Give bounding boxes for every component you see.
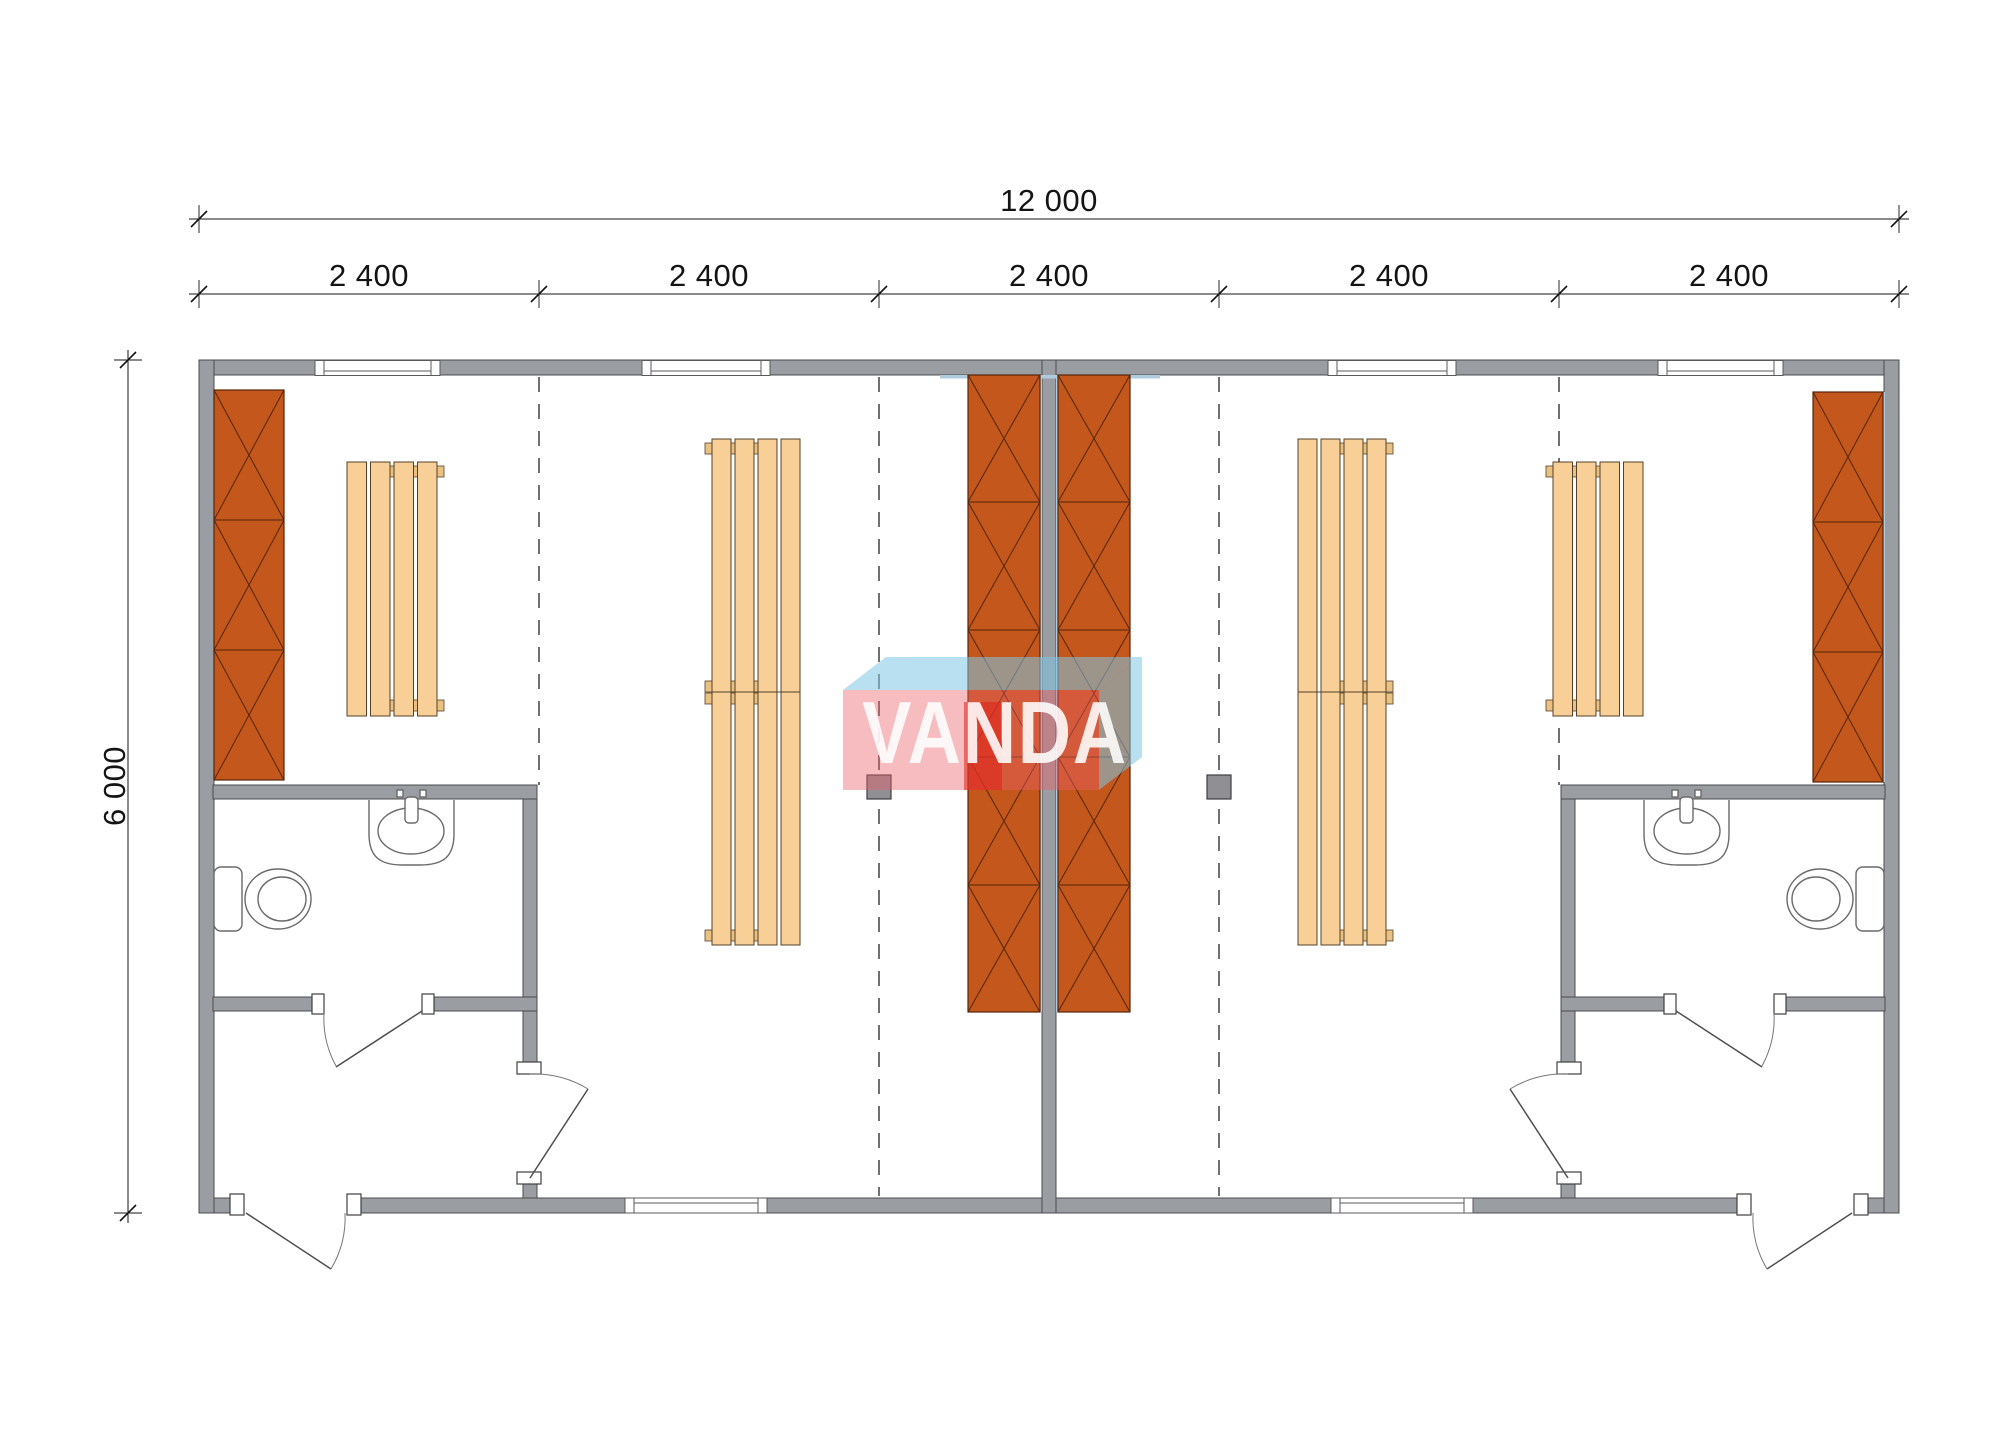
locker-left-wall bbox=[214, 390, 284, 780]
bathroom-wall-bottom-b bbox=[434, 997, 537, 1011]
wall-right bbox=[1884, 360, 1899, 1213]
bench-module-1 bbox=[347, 462, 444, 716]
dimension-overall-width: 12 000 bbox=[189, 183, 1909, 233]
toilet-icon bbox=[214, 867, 311, 931]
vestibule-wall-a bbox=[523, 1011, 537, 1062]
sanitary-unit-right-mirrored bbox=[1510, 785, 1885, 1269]
floor-plan-drawing: 12 000 2 400 2 400 2 400 2 400 2 400 6 0… bbox=[0, 0, 2000, 1438]
module-width-label-1: 2 400 bbox=[329, 258, 409, 293]
bench-module-2 bbox=[705, 439, 800, 945]
dimension-modules: 2 400 2 400 2 400 2 400 2 400 bbox=[189, 258, 1909, 308]
dimension-overall-height: 6 000 bbox=[97, 350, 142, 1223]
sink-icon bbox=[369, 790, 454, 865]
window-top-2 bbox=[642, 361, 770, 376]
wall-left bbox=[199, 360, 214, 1213]
vestibule-door bbox=[517, 1062, 588, 1184]
vestibule-wall-b bbox=[523, 1184, 537, 1198]
sanitary-unit-left bbox=[213, 785, 588, 1269]
entrance-door bbox=[230, 1194, 361, 1269]
bathroom-door bbox=[312, 994, 434, 1067]
bathroom-wall-bottom-a bbox=[213, 997, 312, 1011]
floor-plan-page: 12 000 2 400 2 400 2 400 2 400 2 400 6 0… bbox=[0, 0, 2000, 1438]
locker-right-wall bbox=[1813, 392, 1883, 782]
window-top-1 bbox=[315, 361, 440, 376]
window-top-3 bbox=[1328, 361, 1456, 376]
bench-module-3 bbox=[1298, 439, 1393, 945]
overall-width-label: 12 000 bbox=[1000, 183, 1098, 218]
window-top-4 bbox=[1658, 361, 1783, 376]
bathroom-wall-side bbox=[523, 799, 537, 997]
module-width-label-4: 2 400 bbox=[1349, 258, 1429, 293]
module-width-label-3: 2 400 bbox=[1009, 258, 1089, 293]
vanda-watermark: VANDA bbox=[843, 657, 1142, 790]
watermark-text: VANDA bbox=[862, 684, 1128, 783]
module-width-label-5: 2 400 bbox=[1689, 258, 1769, 293]
column-post-2 bbox=[1207, 775, 1231, 799]
bench-module-4 bbox=[1546, 462, 1643, 716]
overall-height-label: 6 000 bbox=[97, 746, 132, 826]
window-bottom-2 bbox=[1331, 1198, 1473, 1213]
module-width-label-2: 2 400 bbox=[669, 258, 749, 293]
window-bottom-1 bbox=[625, 1198, 767, 1213]
bathroom-wall-top bbox=[213, 785, 537, 799]
